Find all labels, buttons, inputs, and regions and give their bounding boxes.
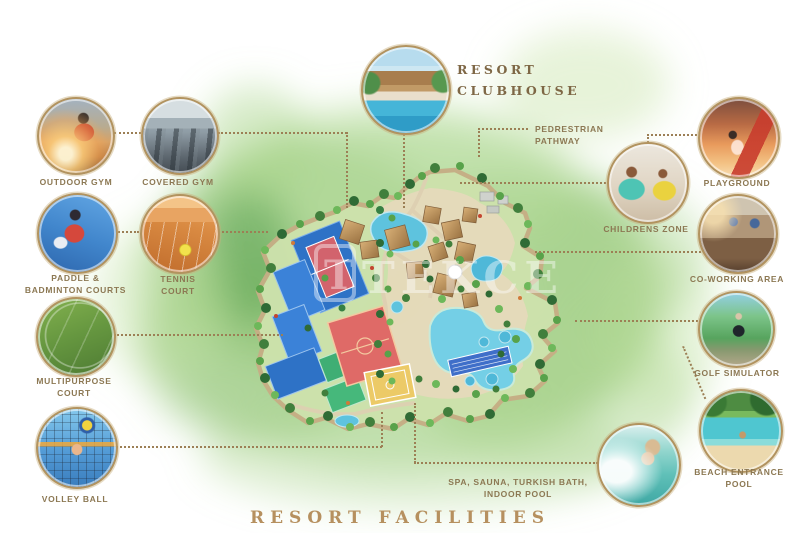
page-title: RESORT FACILITIES xyxy=(0,508,800,528)
pedestrian-pathway-label: PEDRESTRIAN PATHWAY xyxy=(535,123,665,148)
connector-tennis-map xyxy=(217,231,268,233)
resort-clubhouse-photo xyxy=(361,45,451,135)
childrens-zone-label: CHILDRENS ZONE xyxy=(576,223,716,235)
spa-photo xyxy=(597,423,681,507)
connector-volleyball-v xyxy=(381,412,383,447)
connector-pathway-v xyxy=(478,128,480,157)
spa-label: SPA, SAUNA, TURKISH BATH, INDOOR POOL xyxy=(430,476,606,501)
covered-gym-photo xyxy=(141,97,219,175)
connector-covered-gym-map xyxy=(218,132,347,134)
beach-entrance-pool-label: BEACH ENTRANCE POOL xyxy=(669,466,800,491)
svg-text:TEKCE: TEKCE xyxy=(362,253,564,304)
outdoor-gym-photo xyxy=(37,97,115,175)
tennis-court-label: TENNIS COURT xyxy=(108,273,248,298)
connector-clubhouse xyxy=(403,130,405,208)
golf-simulator-label: GOLF SIMULATOR xyxy=(665,367,800,379)
connector-covered-gym-map-v xyxy=(346,132,348,208)
connector-spa-v xyxy=(414,403,416,463)
connector-golf xyxy=(575,320,698,322)
volley-ball-label: VOLLEY BALL xyxy=(5,493,145,505)
volley-ball-photo xyxy=(36,407,118,489)
svg-text:T: T xyxy=(324,252,354,299)
golf-simulator-photo xyxy=(698,291,775,368)
connector-gyms xyxy=(114,132,141,134)
connector-pathway-h xyxy=(478,128,528,130)
tennis-court-photo xyxy=(140,194,220,274)
covered-gym-label: COVERED GYM xyxy=(108,176,248,188)
resort-facilities-infographic: T TEKCE OUTDOOR GYM COVERED GYM RESORT C… xyxy=(0,0,800,533)
connector-coworking xyxy=(535,251,701,253)
connector-multipurpose xyxy=(114,334,283,336)
paddle-badminton-photo xyxy=(37,193,118,274)
multipurpose-court-label: MULTIPURPOSE COURT xyxy=(4,375,144,400)
beach-entrance-pool-photo xyxy=(699,389,783,473)
watermark: T TEKCE xyxy=(316,246,564,304)
playground-label: PLAYGROUND xyxy=(667,177,800,189)
connector-volleyball xyxy=(116,446,382,448)
playground-photo xyxy=(698,97,780,179)
co-working-area-label: CO-WORKING AREA xyxy=(665,273,800,285)
resort-site-plan: T TEKCE xyxy=(230,148,640,448)
connector-childrens-zone xyxy=(460,182,606,184)
connector-spa-h xyxy=(414,462,598,464)
resort-clubhouse-label: RESORT CLUBHOUSE xyxy=(457,59,580,102)
connector-paddle-tennis xyxy=(115,231,139,233)
multipurpose-court-photo xyxy=(36,297,116,377)
